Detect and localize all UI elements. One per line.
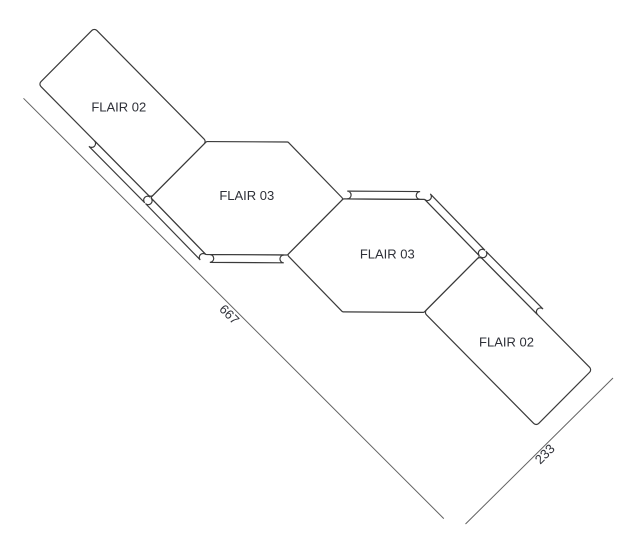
svg-text:FLAIR 02: FLAIR 02 — [91, 99, 146, 114]
svg-text:FLAIR 03: FLAIR 03 — [360, 247, 415, 262]
svg-text:FLAIR 02: FLAIR 02 — [479, 335, 534, 350]
svg-text:FLAIR 03: FLAIR 03 — [219, 188, 274, 203]
